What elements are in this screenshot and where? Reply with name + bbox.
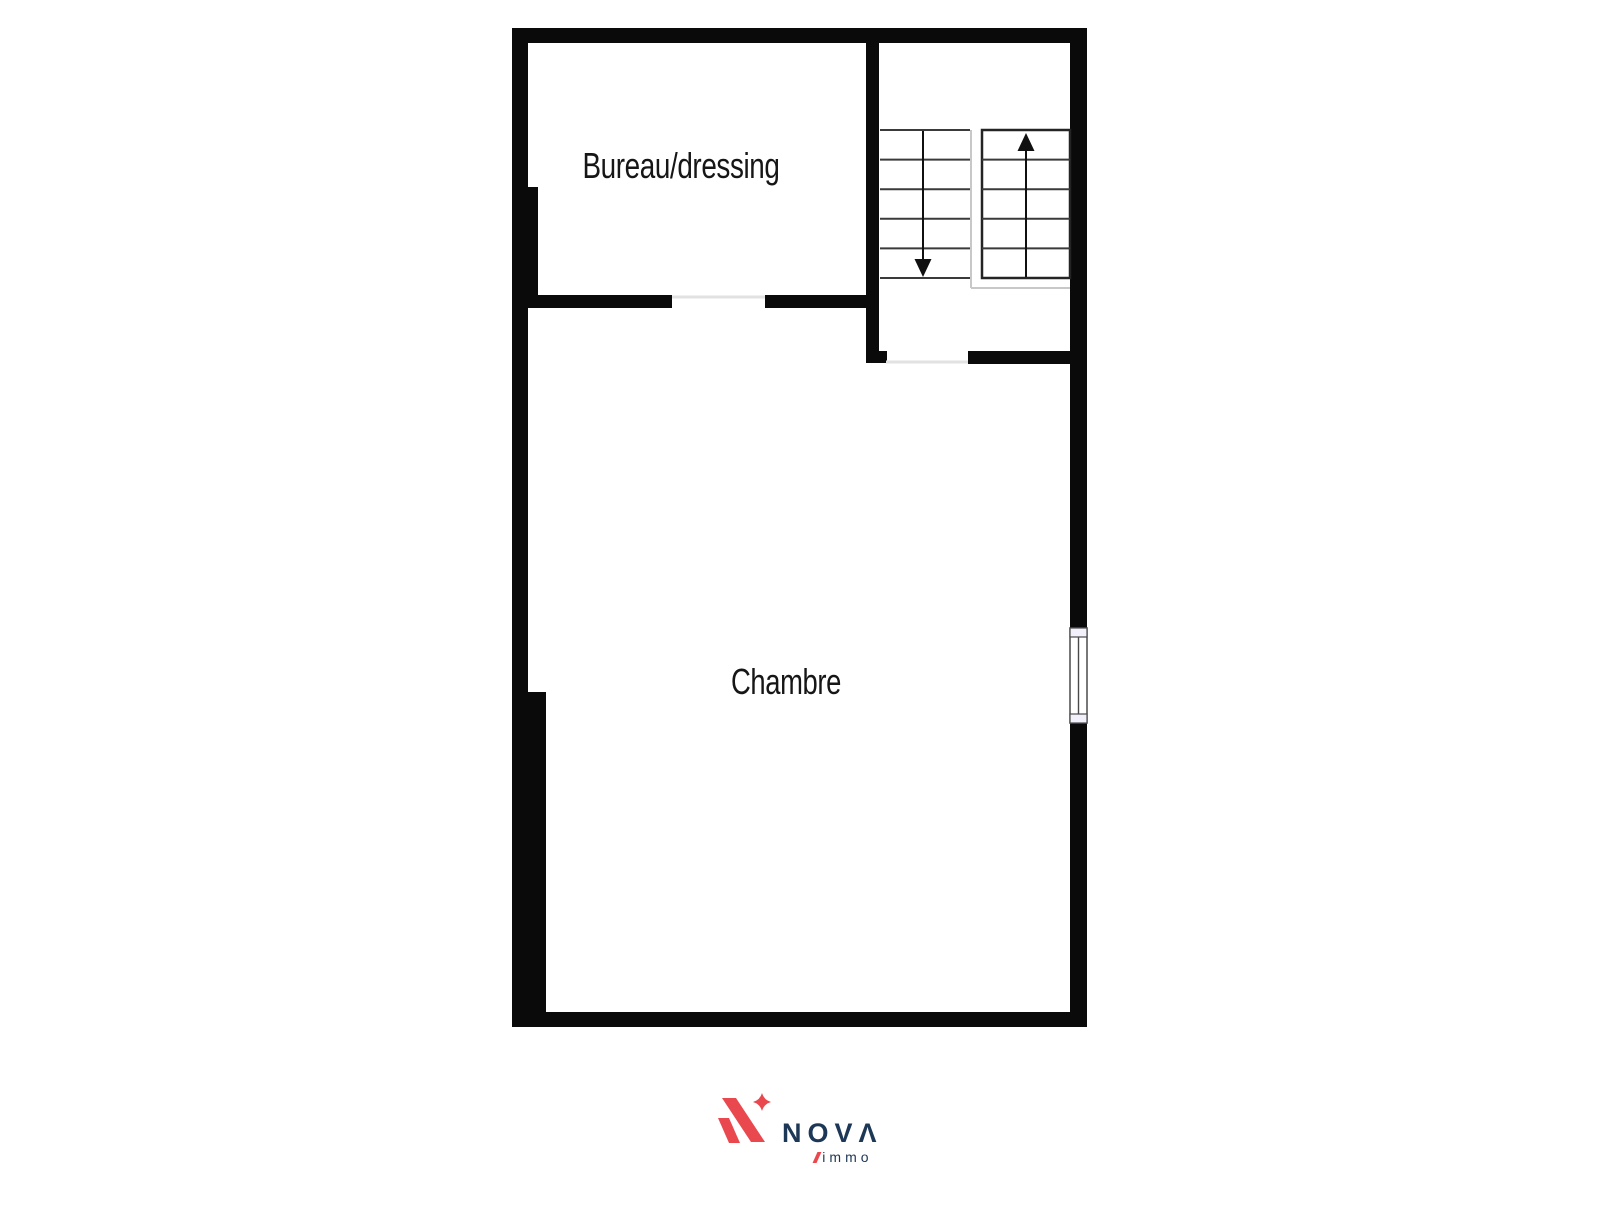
wall-left (512, 28, 528, 1027)
wall-divider-stub (879, 351, 887, 363)
floorplan-drawing: Bureau/dressing Chambre (0, 0, 1600, 1200)
stairs-down-arrow-head-icon (915, 259, 932, 277)
brand-sub-slash-icon (813, 1152, 822, 1163)
sparkle-icon (753, 1093, 771, 1111)
wall-bureau-bottom-right (765, 295, 879, 308)
brand-sub-label: immo (822, 1150, 872, 1164)
wall-stairhall-bottom (968, 351, 1070, 364)
nova-logo-mark-icon (712, 1092, 772, 1148)
wall-left-notch-chambre (528, 692, 546, 1027)
staircase (880, 130, 1070, 288)
wall-right-lower (1070, 723, 1087, 1027)
wall-bottom (512, 1012, 1087, 1027)
bureau-room-label: Bureau/dressing (583, 145, 780, 186)
floorplan-page: Bureau/dressing Chambre NOVΛ immo (0, 0, 1600, 1200)
wall-bureau-stairs-divider (866, 43, 879, 363)
chambre-room-label: Chambre (731, 661, 841, 702)
stairs-right-flight (982, 130, 1070, 278)
wall-bureau-bottom-left (512, 295, 672, 308)
wall-right-upper (1070, 28, 1087, 628)
chambre-window (1070, 628, 1087, 723)
wall-left-notch-bureau (528, 187, 538, 308)
wall-top (512, 28, 1087, 43)
stairs-left-flight (880, 130, 970, 278)
brand-logo: NOVΛ immo (712, 1092, 883, 1164)
brand-name: NOVΛ (782, 1120, 883, 1147)
